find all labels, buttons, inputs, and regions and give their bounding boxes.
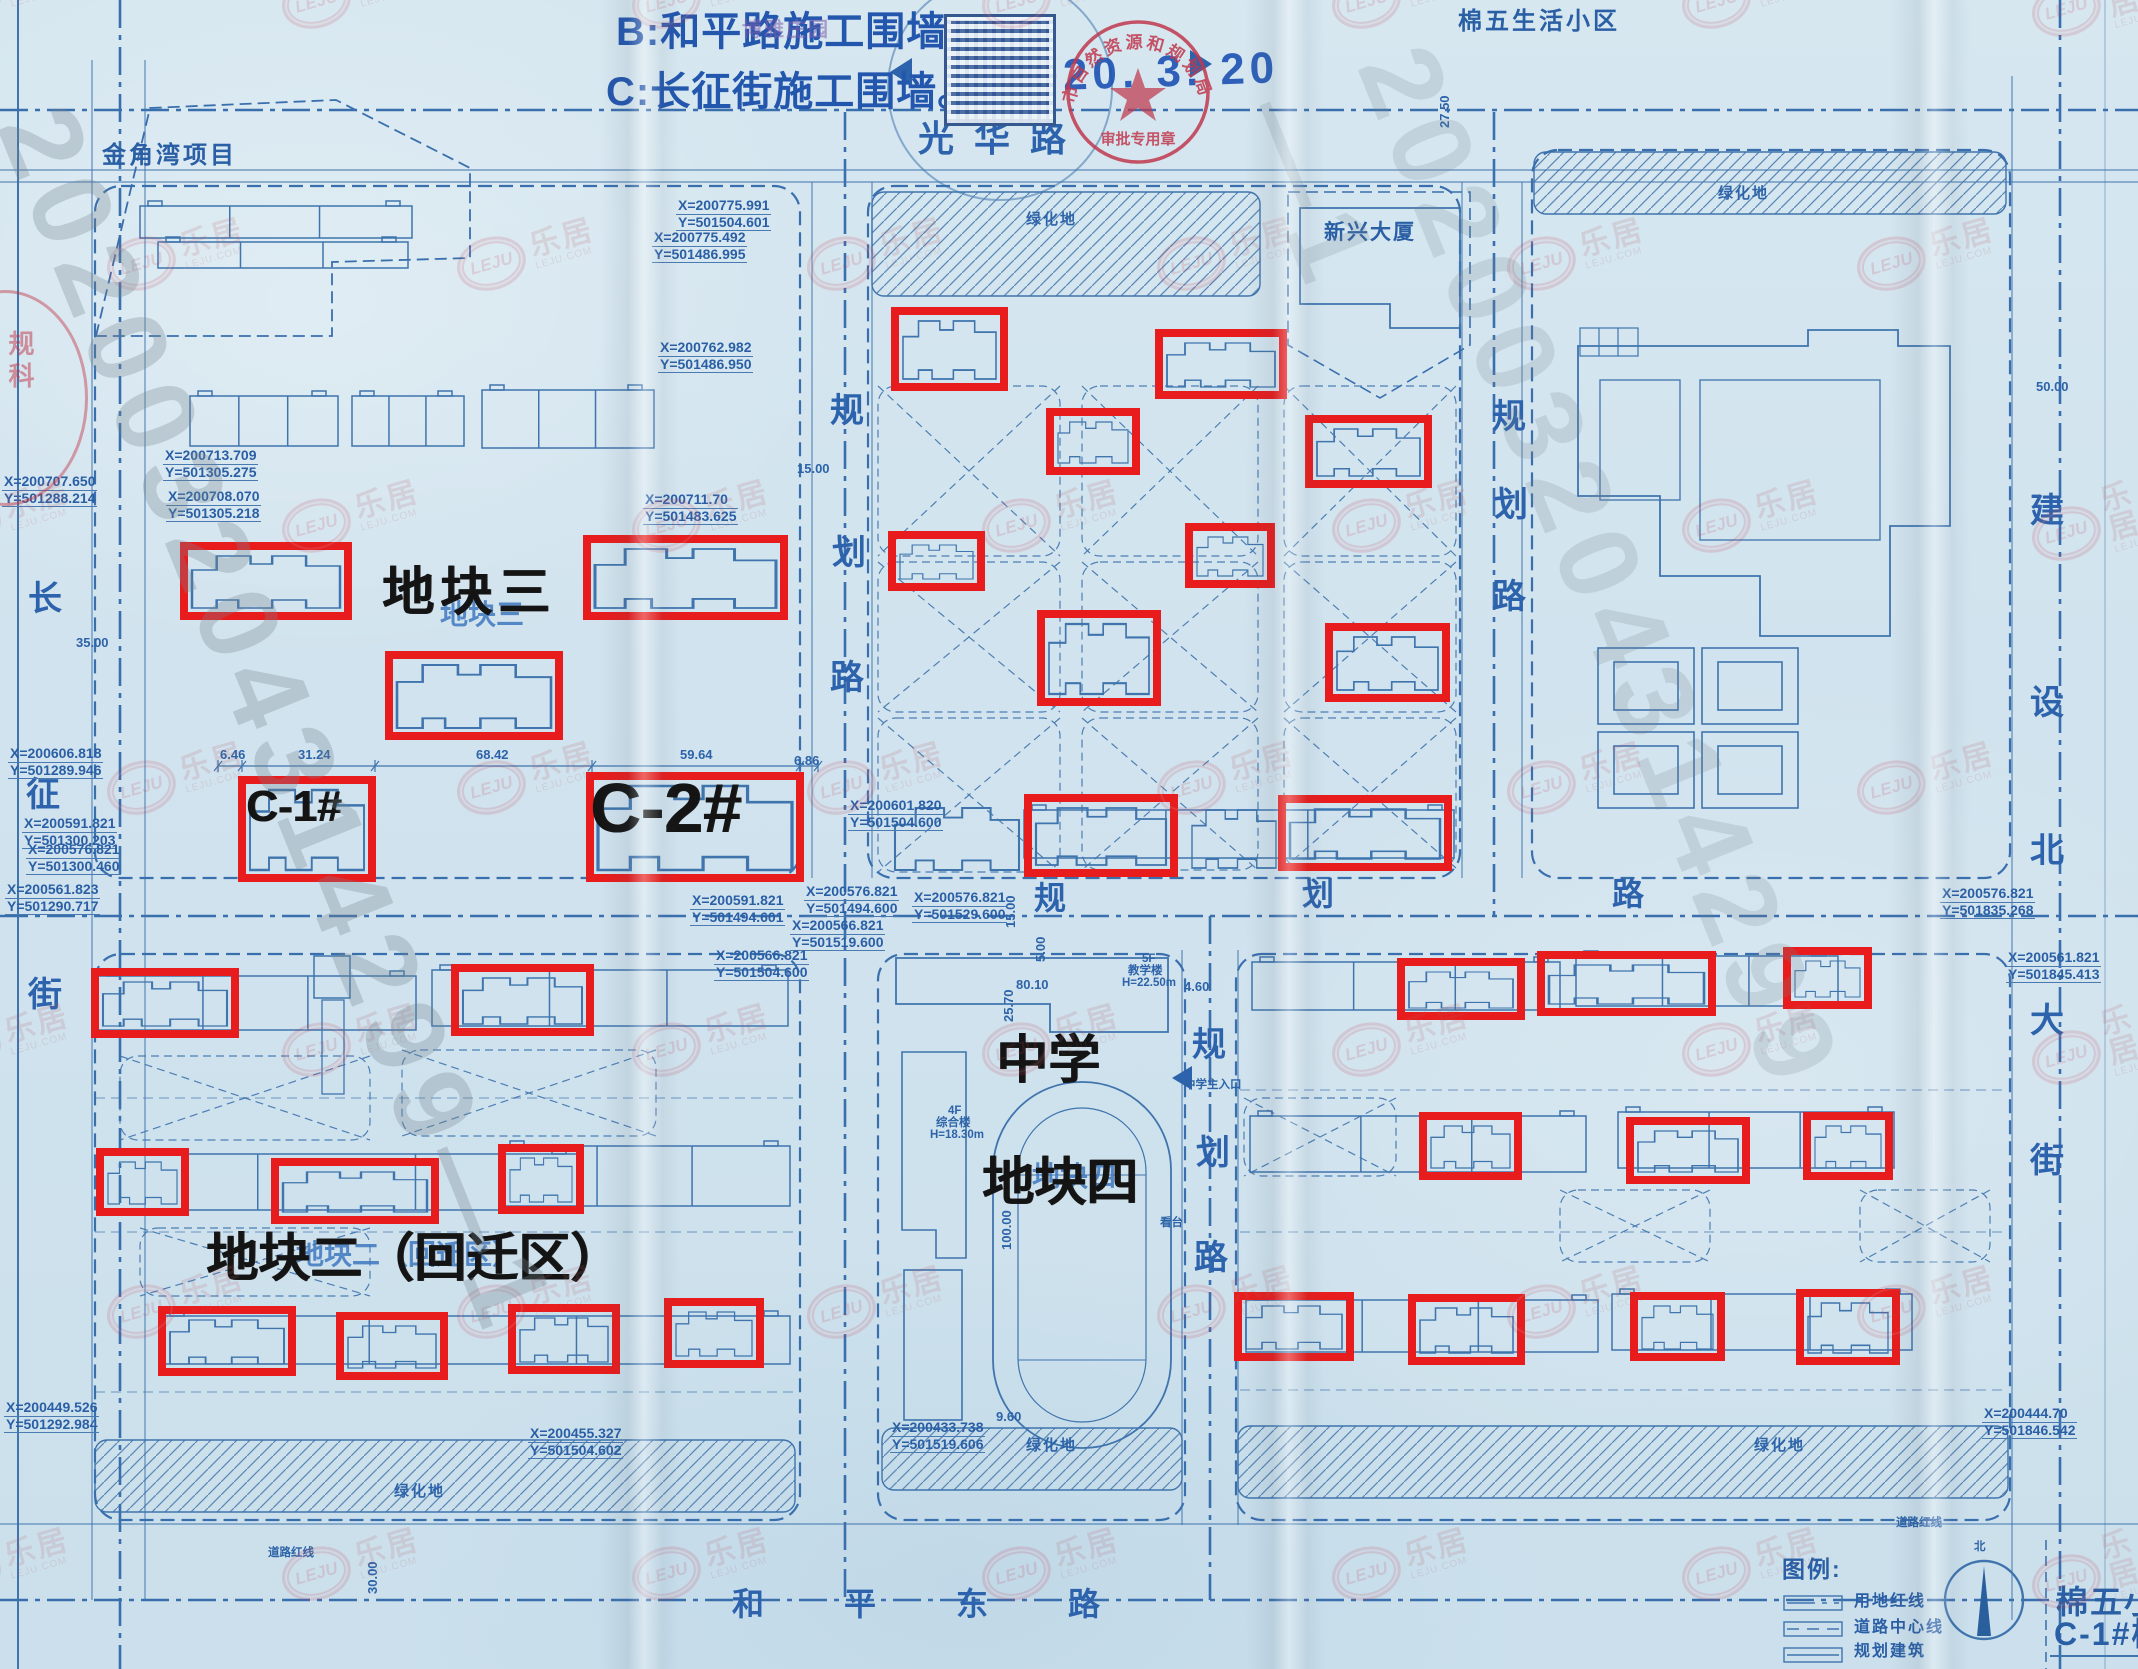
- coordinate-callout: X=200455.327Y=501504.602: [528, 1426, 623, 1459]
- coordinate-callout: X=200561.823Y=501290.717: [5, 882, 100, 915]
- label-school: 中学: [996, 1034, 1100, 1088]
- coord-y: Y=501305.275: [163, 465, 258, 482]
- dimension-value: 9.60: [996, 1410, 1021, 1424]
- coord-x: X=200576.821: [912, 890, 1007, 907]
- coord-y: Y=501845.413: [2006, 967, 2101, 984]
- coord-x: X=200601.820: [848, 798, 943, 815]
- coord-y: Y=501504.600: [848, 815, 943, 832]
- coord-y: Y=501835.268: [1940, 903, 2035, 920]
- coordinate-callout: X=200713.709Y=501305.275: [163, 448, 258, 481]
- coord-x: X=200566.821: [790, 918, 885, 935]
- coordinate-callout: X=200576.821Y=501494.600: [804, 884, 899, 917]
- coord-y: Y=501846.542: [1982, 1423, 2077, 1440]
- dimension-value: 100.00: [1000, 1210, 1014, 1250]
- road-jianshebei-char: 大: [2030, 1004, 2064, 1039]
- coordinate-callout: X=200708.070Y=501305.218: [166, 489, 261, 522]
- dimension-value: 6.86: [794, 754, 819, 768]
- coord-x: X=200708.070: [166, 489, 261, 506]
- coord-y: Y=501486.950: [658, 357, 753, 374]
- coordinate-callout: X=200576.821Y=501835.268: [1940, 886, 2035, 919]
- coord-y: Y=501305.218: [166, 506, 261, 523]
- road-jianshebei-char: 设: [2030, 686, 2064, 721]
- coord-y: Y=501290.717: [5, 899, 100, 916]
- dimension-value: 15.00: [1004, 895, 1018, 928]
- label-mianwu-estate: 棉五生活小区: [1458, 10, 1620, 35]
- coord-x: X=200576.821: [1940, 886, 2035, 903]
- dimension-value: 4.60: [1184, 980, 1209, 994]
- label-road-redline: 道路红线: [1896, 1518, 1942, 1530]
- coord-y: Y=501519.606: [890, 1437, 985, 1454]
- label-stand: 看台: [1160, 1218, 1183, 1230]
- label-green-area: 绿化地: [1026, 1438, 1077, 1454]
- legend-item-label: 道路中心线: [1854, 1620, 1944, 1637]
- road-planned-char: 路: [1492, 580, 1526, 615]
- coord-x: X=200576.821: [26, 842, 121, 859]
- dimension-value: 6.46: [220, 748, 245, 762]
- dimension-value: 25.70: [1002, 989, 1016, 1022]
- dimension-value: 35.00: [76, 636, 109, 650]
- road-changzheng-char: 街: [28, 978, 62, 1013]
- coord-y: Y=501529.600: [912, 907, 1007, 924]
- label-teaching-height: H=22.50m: [1122, 978, 1176, 990]
- road-planned-char: 路: [1612, 878, 1644, 911]
- coordinate-callout: X=200449.526Y=501292.984: [4, 1400, 99, 1433]
- road-planned-char: 划: [1302, 878, 1334, 911]
- approval-stamp: 市自然资源和规划局 审批专用章: [1052, 10, 1228, 186]
- label-plot3: 地块三: [382, 566, 556, 620]
- label-school-entrance: 中学主入口: [1184, 1080, 1242, 1092]
- road-planned-char: 路: [830, 661, 864, 696]
- road-changzheng-char: 长: [28, 582, 62, 617]
- coord-y: Y=501292.984: [4, 1417, 99, 1434]
- legend-item-label: 用地红线: [1854, 1594, 1926, 1611]
- label-green-area: 绿化地: [394, 1484, 445, 1500]
- coord-y: Y=501483.625: [643, 509, 738, 526]
- note-wall-c: C:长征街施工围墙。: [606, 72, 978, 114]
- coord-y: Y=501504.600: [714, 965, 809, 982]
- road-planned-char: 划: [1494, 488, 1528, 523]
- coordinate-callout: X=200711.70Y=501483.625: [643, 492, 738, 525]
- coord-x: X=200591.821: [22, 816, 117, 833]
- label-green-area: 绿化地: [1754, 1438, 1805, 1454]
- coordinate-callout: X=200775.991Y=501504.601: [676, 198, 771, 231]
- coord-x: X=200713.709: [163, 448, 258, 465]
- site-plan-blueprint: B:和平路施工围墙。C:长征街施工围墙。2020. 3. 20博雅庄园棉五生活小…: [0, 0, 2138, 1669]
- road-planned-char: 规: [1192, 1028, 1226, 1063]
- road-jianshebei-char: 北: [2030, 834, 2064, 869]
- coord-x: X=200711.70: [643, 492, 738, 509]
- coordinate-callout: X=200444.70Y=501846.542: [1982, 1406, 2077, 1439]
- coord-x: X=200561.823: [5, 882, 100, 899]
- road-jianshebei-char: 街: [2030, 1144, 2064, 1179]
- coord-x: X=200762.982: [658, 340, 753, 357]
- coord-y: Y=501289.946: [8, 763, 103, 780]
- label-c2: C-2#: [590, 772, 742, 845]
- label-plot2: 地块二（回迁区）: [206, 1232, 622, 1286]
- coord-y: Y=501494.601: [690, 910, 785, 927]
- road-planned-char: 规: [1034, 882, 1066, 915]
- road-hepingdong: 和平东路: [732, 1588, 1180, 1621]
- coord-x: X=200449.526: [4, 1400, 99, 1417]
- stamp-seal-text: 审批专用章: [1100, 130, 1175, 148]
- dimension-value: 80.10: [1016, 978, 1049, 992]
- compass-north-label: 北: [1974, 1542, 1986, 1554]
- titleblock-project: 棉五小区: [2056, 1586, 2138, 1619]
- coordinate-callout: X=200561.821Y=501845.413: [2006, 950, 2101, 983]
- text-labels-layer: B:和平路施工围墙。C:长征街施工围墙。2020. 3. 20博雅庄园棉五生活小…: [0, 0, 2138, 1669]
- road-jianshebei-char: 建: [2030, 494, 2064, 529]
- coord-x: X=200606.818: [8, 746, 103, 763]
- coordinate-callout: X=200775.492Y=501486.995: [652, 230, 747, 263]
- coordinate-callout: X=200606.818Y=501289.946: [8, 746, 103, 779]
- titleblock-building: C-1#楼: [2054, 1618, 2138, 1651]
- coordinate-callout: X=200576.821Y=501529.600: [912, 890, 1007, 923]
- coordinate-callout: X=200566.821Y=501504.600: [714, 948, 809, 981]
- road-planned-char: 划: [1196, 1136, 1230, 1171]
- label-xinxing-tower: 新兴大厦: [1324, 222, 1416, 244]
- legend-item-label: 规划建筑: [1854, 1644, 1926, 1661]
- road-planned-char: 划: [832, 536, 866, 571]
- dimension-value: 31.24: [298, 748, 331, 762]
- road-changzheng-char: 征: [26, 778, 60, 813]
- label-plot4: 地块四: [982, 1156, 1138, 1210]
- coord-y: Y=501300.460: [26, 859, 121, 876]
- coord-x: X=200561.821: [2006, 950, 2101, 967]
- stamp-star-icon: [1110, 68, 1166, 121]
- coord-y: Y=501494.600: [804, 901, 899, 918]
- label-road-redline: 道路红线: [268, 1548, 314, 1560]
- road-planned-char: 规: [1492, 400, 1526, 435]
- dimension-value: 5.00: [1034, 937, 1048, 962]
- label-green-area: 绿化地: [1718, 186, 1769, 202]
- qr-code: [944, 14, 1056, 126]
- coordinate-callout: X=200591.821Y=501494.601: [690, 893, 785, 926]
- coord-y: Y=501504.602: [528, 1443, 623, 1460]
- coordinate-callout: X=200601.820Y=501504.600: [848, 798, 943, 831]
- dimension-value: 68.42: [476, 748, 509, 762]
- dimension-value: 50.00: [2036, 380, 2069, 394]
- coord-x: X=200775.991: [676, 198, 771, 215]
- dimension-value: 15.00: [797, 462, 830, 476]
- label-complex-height: H=18.30m: [930, 1130, 984, 1142]
- coord-x: X=200566.821: [714, 948, 809, 965]
- dimension-value: 59.64: [680, 748, 713, 762]
- label-c1: C-1#: [246, 784, 341, 830]
- coord-x: X=200444.70: [1982, 1406, 2077, 1423]
- coord-x: X=200775.492: [652, 230, 747, 247]
- coord-x: X=200591.821: [690, 893, 785, 910]
- dimension-value: 30.00: [366, 1561, 380, 1594]
- label-green-area: 绿化地: [1026, 212, 1077, 228]
- coord-x: X=200576.821: [804, 884, 899, 901]
- legend-title: 图例:: [1782, 1558, 1842, 1582]
- road-planned-char: 规: [830, 394, 864, 429]
- coord-x: X=200433.738: [890, 1420, 985, 1437]
- road-planned-char: 路: [1194, 1241, 1228, 1276]
- coord-x: X=200455.327: [528, 1426, 623, 1443]
- dimension-value: 27.50: [1438, 95, 1452, 128]
- coordinate-callout: X=200433.738Y=501519.606: [890, 1420, 985, 1453]
- coord-y: Y=501486.995: [652, 247, 747, 264]
- label-jinjiaowan: 金角湾项目: [102, 144, 237, 169]
- faint-stamp-text: 博雅庄园: [742, 20, 830, 41]
- coordinate-callout: X=200576.821Y=501300.460: [26, 842, 121, 875]
- coordinate-callout: X=200762.982Y=501486.950: [658, 340, 753, 373]
